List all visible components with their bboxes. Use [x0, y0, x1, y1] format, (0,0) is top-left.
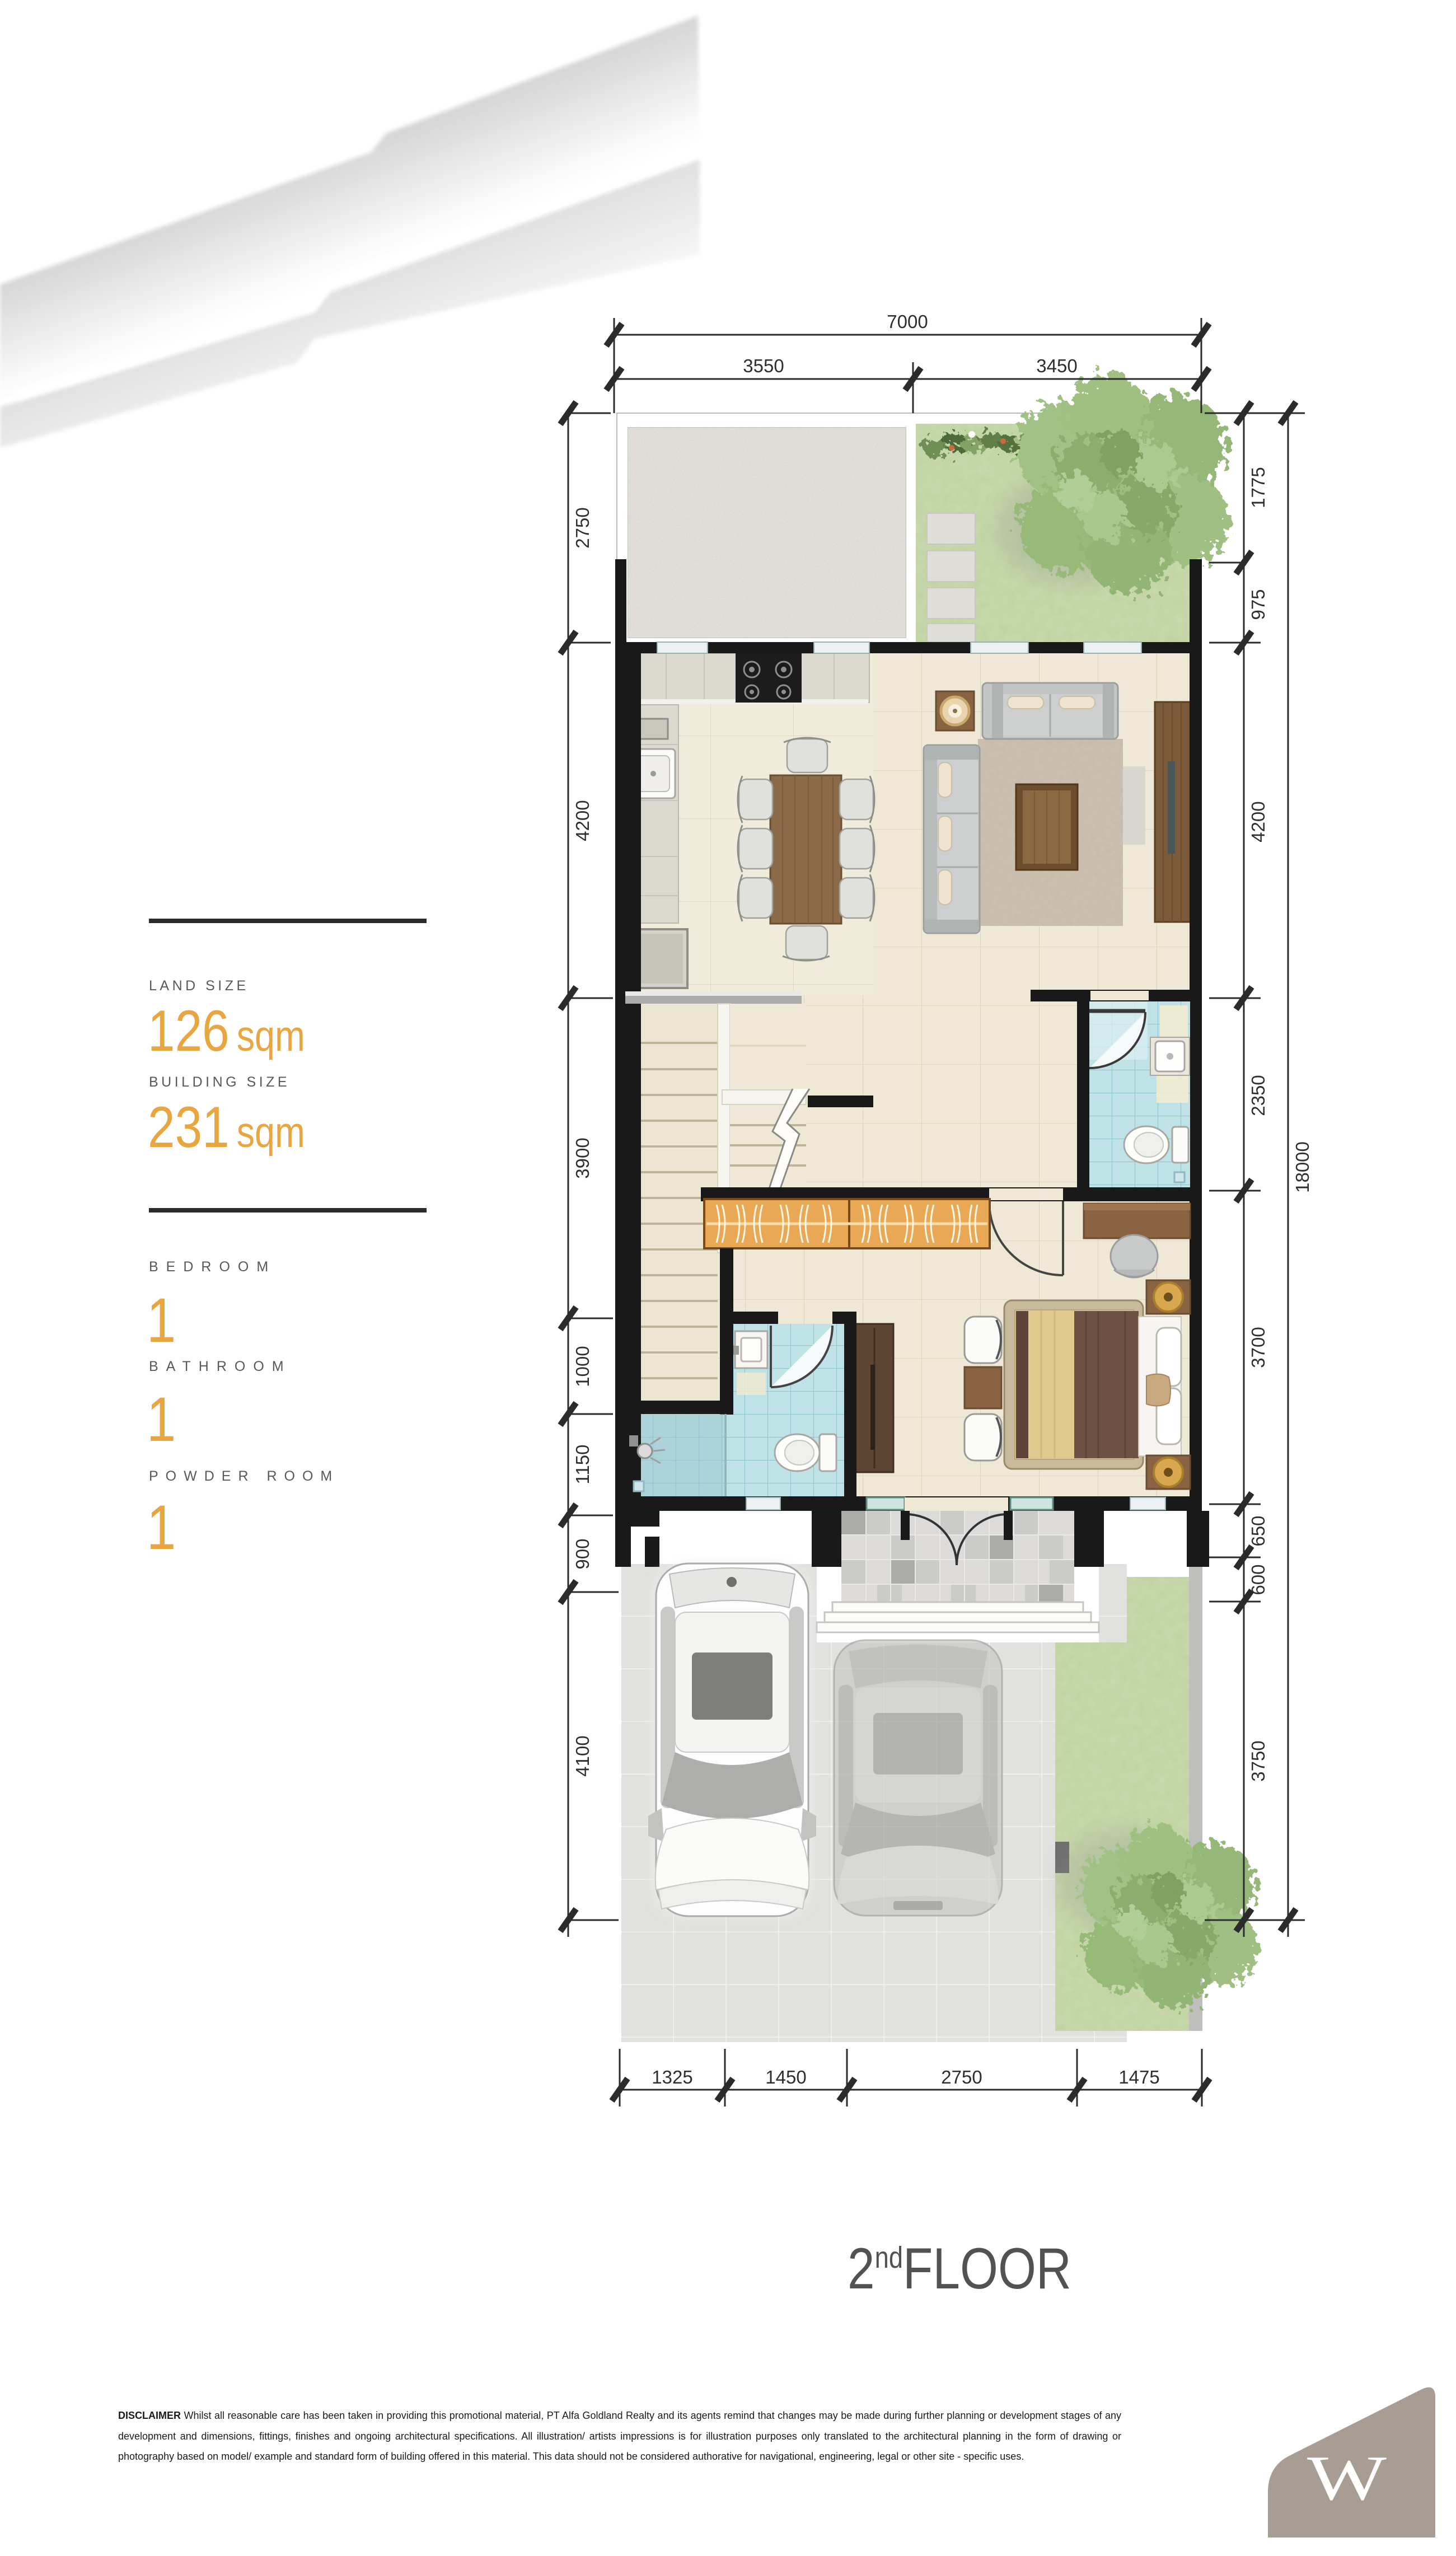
svg-text:7000: 7000: [887, 311, 928, 332]
svg-text:3550: 3550: [743, 355, 784, 376]
svg-text:1450: 1450: [765, 2067, 806, 2087]
svg-text:3700: 3700: [1248, 1327, 1268, 1368]
svg-text:18000: 18000: [1292, 1141, 1313, 1193]
svg-text:1775: 1775: [1248, 467, 1268, 508]
svg-text:4200: 4200: [572, 800, 593, 841]
svg-text:4200: 4200: [1248, 801, 1268, 842]
svg-text:3900: 3900: [572, 1137, 593, 1178]
svg-text:4100: 4100: [572, 1735, 593, 1776]
svg-text:2350: 2350: [1248, 1075, 1268, 1116]
svg-text:900: 900: [572, 1538, 593, 1569]
svg-text:W: W: [1307, 2442, 1387, 2513]
svg-text:3450: 3450: [1036, 355, 1077, 376]
svg-text:2750: 2750: [572, 507, 593, 548]
svg-text:1000: 1000: [572, 1346, 593, 1387]
svg-text:600: 600: [1248, 1564, 1268, 1595]
svg-text:1475: 1475: [1118, 2067, 1159, 2087]
svg-text:2750: 2750: [941, 2067, 982, 2087]
svg-text:650: 650: [1248, 1515, 1268, 1546]
svg-text:975: 975: [1248, 589, 1268, 620]
svg-text:1325: 1325: [652, 2067, 692, 2087]
svg-text:1150: 1150: [572, 1445, 593, 1485]
svg-text:3750: 3750: [1248, 1740, 1268, 1781]
